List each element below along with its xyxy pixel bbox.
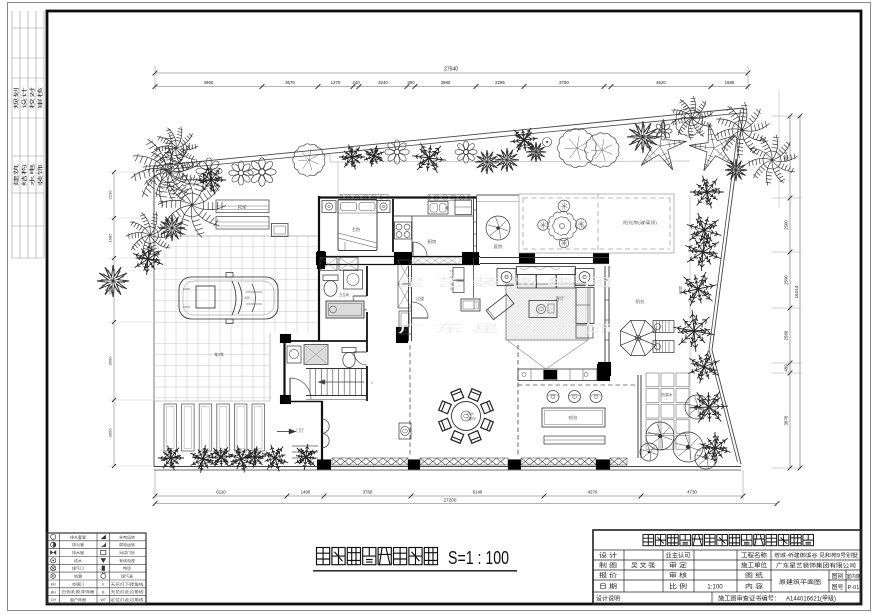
svg-text:1:100: 1:100 (707, 584, 723, 591)
svg-text:天花灯走边角线: 天花灯走边角线 (111, 589, 145, 594)
svg-text:过道: 过道 (416, 296, 424, 301)
svg-text:4620: 4620 (656, 80, 666, 85)
svg-text:规划: 规划 (12, 87, 20, 109)
svg-text:室内施: 室内施 (847, 573, 861, 580)
svg-text:WT: WT (101, 598, 107, 602)
svg-text:b: b (102, 582, 104, 586)
svg-text:广 东 星 艺 装 饰: 广 东 星 艺 装 饰 (398, 321, 613, 335)
svg-text:制 图: 制 图 (599, 562, 617, 570)
svg-text:庭院: 庭院 (494, 244, 503, 249)
svg-text:P-01: P-01 (848, 585, 860, 591)
svg-text:水电: 水电 (28, 164, 36, 186)
svg-text:2560: 2560 (784, 330, 789, 340)
svg-text:3600: 3600 (108, 356, 113, 366)
svg-text:施工单位: 施工单位 (741, 562, 767, 570)
svg-text:3240: 3240 (378, 80, 388, 85)
svg-text:空调口: 空调口 (72, 581, 85, 586)
svg-text:1370: 1370 (331, 80, 341, 85)
svg-text:绿篱: 绿篱 (678, 285, 683, 294)
svg-text:3050: 3050 (108, 428, 113, 438)
svg-text:阳台: 阳台 (636, 298, 645, 304)
svg-text:1685: 1685 (725, 80, 735, 85)
svg-text:27540: 27540 (444, 67, 458, 73)
svg-text:3870: 3870 (784, 415, 789, 425)
svg-text:A144016621(甲级): A144016621(甲级) (786, 595, 836, 603)
svg-text:煤气口: 煤气口 (72, 566, 85, 571)
svg-text:1500: 1500 (466, 412, 474, 416)
svg-text:450: 450 (784, 364, 789, 372)
svg-text:增城-侨建御溪谷 见和苑9号别墅: 增城-侨建御溪谷 见和苑9号别墅 (774, 551, 858, 559)
svg-text:客厅: 客厅 (556, 295, 565, 301)
svg-text:图 纸: 图 纸 (745, 572, 763, 580)
svg-text:阳光房(玻璃顶): 阳光房(玻璃顶) (623, 219, 658, 225)
svg-text:餐厅: 餐厅 (468, 416, 476, 421)
svg-text:3980: 3980 (441, 80, 451, 85)
svg-text:校对: 校对 (28, 87, 36, 109)
svg-text:1: 1 (371, 381, 373, 385)
svg-text:广东星艺装饰集团有限公司: 广东星艺装饰集团有限公司 (776, 561, 856, 569)
svg-text:厨房: 厨房 (428, 238, 437, 244)
svg-text:排水管: 排水管 (72, 550, 85, 555)
svg-text:星 艺 装 饰 集 团: 星 艺 装 饰 集 团 (398, 275, 613, 289)
svg-text:花架: 花架 (238, 205, 247, 210)
svg-text:结构: 结构 (20, 164, 28, 186)
svg-text:3750: 3750 (559, 80, 569, 85)
svg-text:KH: KH (51, 582, 56, 586)
svg-text:给水: 给水 (74, 558, 83, 563)
svg-text:业主认可: 业主认可 (666, 552, 691, 560)
svg-text:防腐木: 防腐木 (662, 392, 673, 397)
svg-text:2130: 2130 (108, 190, 113, 200)
svg-text:煤气表: 煤气表 (121, 574, 134, 579)
svg-text:240: 240 (352, 80, 360, 85)
svg-text:吧台: 吧台 (569, 415, 578, 420)
svg-text:原建筑平面图: 原建筑平面图 (779, 578, 821, 586)
svg-text:排污管: 排污管 (72, 542, 85, 547)
svg-text:卫生间: 卫生间 (339, 292, 349, 297)
svg-text:弱电运转: 弱电运转 (119, 542, 136, 547)
svg-text:电话: 电话 (123, 566, 132, 571)
svg-text:2295: 2295 (495, 80, 505, 85)
svg-text:报 价: 报 价 (599, 572, 617, 580)
svg-text:3670: 3670 (285, 80, 295, 85)
svg-text:主卧: 主卧 (352, 226, 361, 232)
svg-text:审 定: 审 定 (669, 562, 687, 570)
svg-text:门厅: 门厅 (296, 428, 304, 433)
svg-text:CH: CH (51, 598, 57, 602)
svg-text:吴 文 强: 吴 文 强 (631, 562, 655, 570)
svg-text:1985: 1985 (108, 233, 113, 243)
svg-text:27200: 27200 (444, 498, 457, 503)
svg-text:488: 488 (244, 296, 250, 300)
svg-text:地漏: 地漏 (74, 574, 83, 579)
svg-text:工程名称: 工程名称 (741, 552, 767, 560)
svg-text:S=1 : 100: S=1 : 100 (448, 548, 509, 568)
svg-text:全电运转: 全电运转 (119, 534, 136, 539)
svg-text:4960: 4960 (204, 80, 214, 85)
svg-text:审 核: 审 核 (669, 572, 687, 580)
svg-text:施工图审查证书编号：: 施工图审查证书编号： (718, 595, 780, 603)
svg-text:设计说明: 设计说明 (596, 595, 620, 603)
svg-text:2500: 2500 (784, 220, 789, 230)
svg-text:内 容: 内 容 (745, 583, 763, 591)
svg-text:图号: 图号 (832, 583, 844, 591)
svg-text:6110: 6110 (216, 490, 226, 495)
svg-text:1#: 1# (582, 225, 586, 229)
svg-text:白色乳胶漆饰面: 白色乳胶漆饰面 (62, 589, 96, 594)
svg-text:设 计: 设 计 (599, 552, 617, 560)
svg-text:图别: 图别 (832, 572, 844, 580)
svg-text:日 期: 日 期 (599, 583, 617, 591)
svg-text:定位灯走边角线: 定位灯走边角线 (111, 597, 145, 602)
svg-text:1490: 1490 (301, 490, 311, 495)
svg-text:车库: 车库 (214, 351, 224, 358)
svg-text:窗户饰面: 窗户饰面 (70, 597, 87, 602)
svg-text:16214: 16214 (794, 285, 799, 298)
svg-text:排水套管: 排水套管 (70, 534, 87, 539)
svg-text:3760: 3760 (363, 490, 373, 495)
svg-text:4730: 4730 (687, 490, 697, 495)
svg-text:390: 390 (407, 80, 415, 85)
svg-text:6140: 6140 (473, 490, 483, 495)
svg-text:设计: 设计 (20, 87, 28, 109)
svg-text:审核: 审核 (36, 87, 44, 109)
svg-text:BH: BH (51, 590, 56, 594)
svg-text:2590: 2590 (784, 275, 789, 285)
svg-text:建筑: 建筑 (12, 162, 20, 186)
svg-text:有线电视: 有线电视 (119, 558, 136, 563)
svg-text:比 例: 比 例 (669, 583, 687, 591)
svg-text:4270: 4270 (588, 490, 598, 495)
svg-text:装饰: 装饰 (36, 164, 44, 186)
svg-text:对讲门铃: 对讲门铃 (119, 550, 136, 555)
svg-text:天花灯下爬角线: 天花灯下爬角线 (111, 581, 145, 586)
